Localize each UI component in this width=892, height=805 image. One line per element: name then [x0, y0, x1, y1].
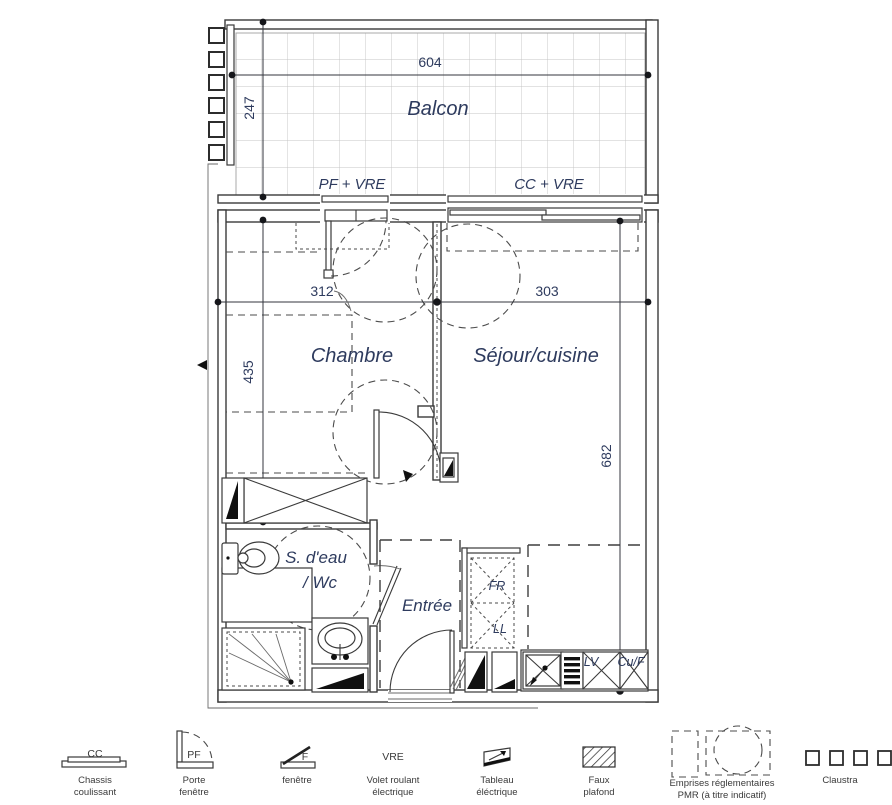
- window-icon: [281, 747, 315, 768]
- appliance-label-cuf: Cu/F: [617, 655, 645, 669]
- chambre-door-leaf: [374, 410, 379, 478]
- room-label-entree: Entrée: [402, 596, 452, 615]
- wardrobe: [222, 478, 367, 523]
- hatch-icon: [583, 747, 615, 767]
- cc-panel-left: [450, 210, 546, 215]
- room-label-bathroom-line2: / Wc: [302, 573, 337, 592]
- dimension-435-label: 435: [240, 360, 256, 384]
- electrical-board: [440, 453, 458, 482]
- svg-text:PMR (à titre indicatif): PMR (à titre indicatif): [678, 790, 767, 800]
- appliance-label-lv: LV: [584, 655, 600, 669]
- chambre-door: [374, 410, 441, 478]
- svg-text:Porte: Porte: [183, 775, 206, 786]
- svg-text:fenêtre: fenêtre: [282, 775, 312, 786]
- legend-item-vre: VRE Volet roulant électrique: [367, 751, 420, 798]
- dimension-312-leader: [334, 291, 351, 311]
- bathroom-east-wall-upper: [370, 520, 377, 564]
- kitchen-counter: LV Cu/F: [521, 650, 648, 691]
- legend-item-fenetre: F fenêtre: [281, 747, 315, 786]
- room-label-balcon: Balcon: [407, 98, 468, 120]
- window-label-pf-vre: PF + VRE: [319, 176, 387, 193]
- appliance-label-ll: LL: [493, 622, 507, 636]
- bathroom-cabinet: [312, 668, 368, 692]
- bathroom-east-wall-lower: [370, 626, 377, 692]
- room-label-bathroom-line1: S. d'eau: [285, 548, 347, 567]
- floor-plan-drawing: 604 247 Balcon PF + VRE CC + VRE: [0, 0, 892, 800]
- balcony-right-wall: [646, 20, 658, 203]
- legend-code-f: F: [302, 751, 308, 763]
- fridge-washer-unit: FR LL: [471, 558, 514, 648]
- svg-text:fenêtre: fenêtre: [179, 787, 209, 798]
- svg-text:plafond: plafond: [583, 787, 614, 798]
- pmr-circle-chambre-door: [333, 380, 437, 484]
- door-stub: [418, 406, 434, 417]
- shower: [222, 628, 305, 690]
- pmr-zone-icon: [672, 726, 770, 777]
- cc-panel-right: [542, 215, 640, 220]
- svg-text:Chassis: Chassis: [78, 775, 112, 786]
- balcony-left-railing: [227, 25, 234, 165]
- svg-text:éléctrique: éléctrique: [476, 787, 517, 798]
- bathroom-door: [373, 566, 401, 625]
- chambre-door-arc: [379, 412, 441, 474]
- kitchen-drainer: [561, 652, 583, 689]
- claustra-squares: [209, 28, 224, 160]
- sliding-window-icon: [62, 757, 126, 767]
- dimension-303-label: 303: [535, 283, 559, 299]
- svg-text:coulissant: coulissant: [74, 787, 117, 798]
- balcony-area: 604 247 Balcon PF + VRE CC + VRE: [209, 19, 658, 203]
- contour-arrow: [197, 360, 207, 370]
- sliding-window-cc: [446, 194, 644, 223]
- svg-text:Claustra: Claustra: [822, 775, 858, 786]
- electrical-panel-icon: [484, 748, 510, 766]
- porte-fenetre-pf: [320, 194, 390, 278]
- svg-text:Emprises réglementaires: Emprises réglementaires: [669, 778, 774, 789]
- faux-plafond-kitchen: [528, 545, 646, 649]
- floor-plan-page: 604 247 Balcon PF + VRE CC + VRE: [0, 0, 892, 800]
- washbasin: [312, 618, 368, 664]
- entrance-door: [388, 630, 454, 702]
- niche-left-wall: [462, 548, 467, 648]
- dimension-604-label: 604: [418, 54, 442, 70]
- bathroom-counter: [222, 568, 312, 622]
- legend: CC Chassis coulissant PF Porte fenêtre: [62, 726, 891, 800]
- legend-item-faux-plafond: Faux plafond: [583, 747, 615, 798]
- pmr-circle-sejour-window: [416, 224, 520, 328]
- bathroom-top-wall: [226, 523, 377, 529]
- legend-item-emprises-pmr: Emprises réglementaires PMR (à titre ind…: [669, 726, 774, 800]
- legend-code-pf: PF: [187, 749, 200, 761]
- legend-item-chassis-coulissant: CC Chassis coulissant: [62, 748, 126, 798]
- claustra-icon: [806, 751, 891, 765]
- legend-item-porte-fenetre: PF Porte fenêtre: [177, 731, 213, 798]
- dimension-247-label: 247: [241, 96, 257, 120]
- kitchen-sink: [523, 652, 563, 689]
- legend-code-vre: VRE: [382, 751, 404, 763]
- pmr-zone-pf-window: [296, 223, 389, 249]
- pf-door-swing-arc: [331, 221, 386, 276]
- dimension-682-label: 682: [598, 444, 614, 468]
- svg-text:Volet roulant: Volet roulant: [367, 775, 420, 786]
- toilet: [222, 542, 279, 574]
- room-label-chambre: Chambre: [311, 345, 393, 367]
- balcony-top-railing: [225, 20, 652, 29]
- niche-top-wall: [462, 548, 520, 553]
- svg-text:Tableau: Tableau: [480, 775, 513, 786]
- legend-item-tableau-electrique: Tableau éléctrique: [476, 748, 517, 798]
- pf-door-leaf: [326, 221, 331, 273]
- dimension-682: 682: [598, 218, 624, 695]
- dishwasher-unit: LV: [583, 652, 620, 689]
- svg-text:électrique: électrique: [372, 787, 413, 798]
- window-label-cc-vre: CC + VRE: [514, 176, 585, 193]
- east-wall: [646, 210, 658, 702]
- room-label-sejour: Séjour/cuisine: [473, 345, 599, 367]
- dimension-312-label: 312: [310, 283, 334, 299]
- bathroom-door-leaf: [373, 566, 397, 624]
- oven-unit: Cu/F: [617, 652, 648, 689]
- bathroom-fixtures: [222, 478, 368, 692]
- legend-item-claustra: Claustra: [806, 751, 891, 786]
- svg-text:Faux: Faux: [588, 775, 609, 786]
- appliance-label-fr: FR: [489, 579, 506, 593]
- pmr-zone-cc-window: [447, 223, 638, 251]
- entrance-door-arc: [390, 630, 452, 692]
- shower-drain: [288, 679, 293, 684]
